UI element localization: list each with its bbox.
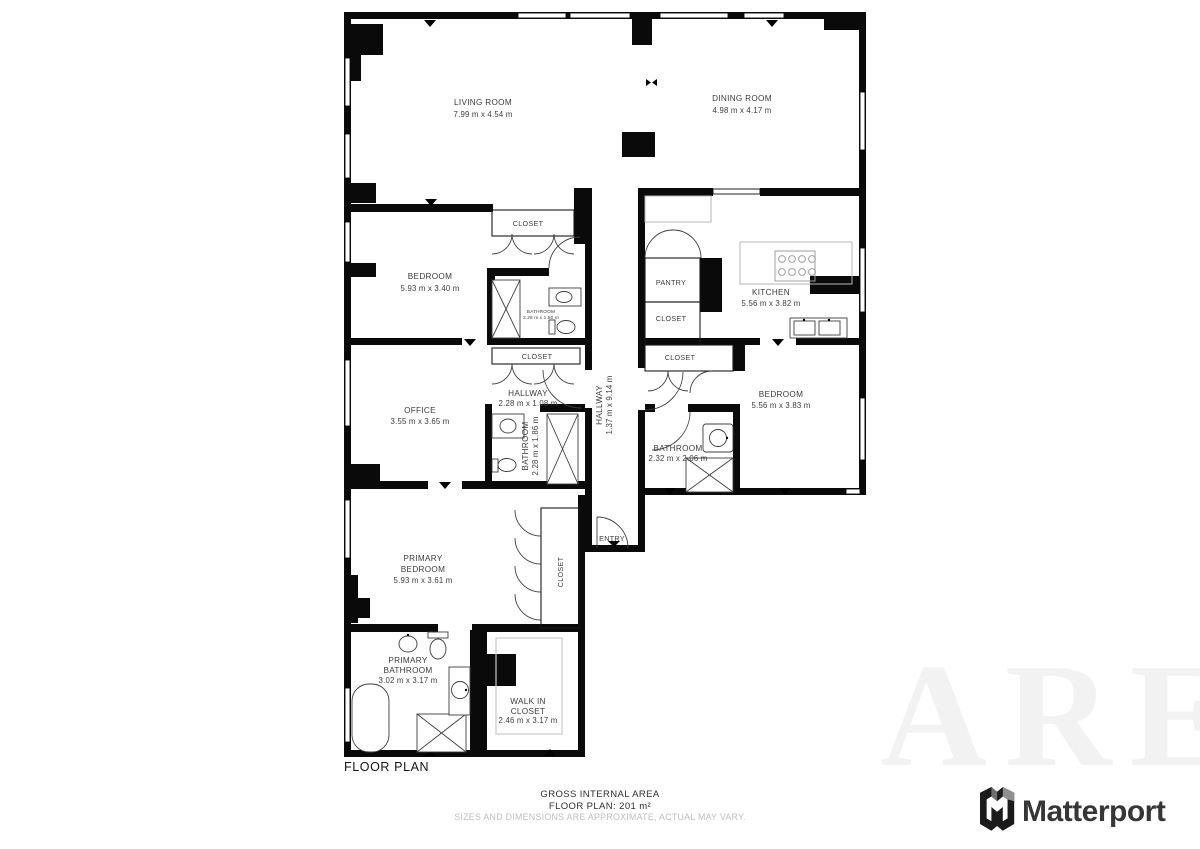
- bathroom-small-fixtures: [492, 280, 581, 338]
- room-dims-bathroom-hall: 2.28 m x 1.86 m: [531, 417, 540, 476]
- room-label-entry: ENTRY: [599, 534, 625, 543]
- room-dims-primary-bathroom: 3.02 m x 3.17 m: [379, 676, 438, 685]
- room-dims-bathroom-small: 2.28 m x 1.50 m: [523, 315, 559, 321]
- room-label-bathroom-small: BATHROOM: [527, 309, 555, 315]
- room-dims-bedroom-top: 5.93 m x 3.40 m: [401, 284, 460, 293]
- sink-icon: [500, 419, 516, 433]
- sink-icon: [819, 321, 840, 335]
- room-label-office: OFFICE: [404, 406, 436, 415]
- bathtub-icon: [352, 684, 389, 752]
- room-dims-walk-in-closet: 2.46 m x 3.17 m: [499, 716, 558, 725]
- room-dims-hallway-small: 2.28 m x 1.08 m: [499, 399, 558, 408]
- room-dims-bedroom-right: 5.56 m x 3.83 m: [752, 401, 811, 410]
- matterport-logo-text: Matterport: [1022, 795, 1166, 828]
- room-label-primary-bathroom-1: PRIMARY: [388, 656, 427, 665]
- room-label-pantry: PANTRY: [656, 278, 686, 287]
- room-label-closet-kitchen: CLOSET: [656, 314, 687, 323]
- toilet-icon: [492, 459, 498, 472]
- sink-icon: [794, 321, 815, 335]
- room-label-living: LIVING ROOM: [454, 98, 512, 107]
- room-dims-office: 3.55 m x 3.65 m: [391, 417, 450, 426]
- room-label-kitchen: KITCHEN: [752, 288, 790, 297]
- matterport-logo-icon: [980, 787, 1014, 831]
- room-label-bathroom-hall: BATHROOM: [521, 421, 530, 470]
- room-label-dining: DINING ROOM: [712, 94, 772, 103]
- watermark-text: ARE: [880, 634, 1200, 798]
- room-label-primary-bedroom-1: PRIMARY: [403, 554, 442, 563]
- toilet-icon: [428, 632, 448, 638]
- floor-plan-area-value: FLOOR PLAN: 201 m²: [549, 801, 651, 812]
- sink-icon: [710, 430, 727, 447]
- room-label-bedroom-right: BEDROOM: [759, 390, 803, 399]
- floor-plan-canvas: ARE: [0, 0, 1200, 849]
- disclaimer-text: SIZES AND DIMENSIONS ARE APPROXIMATE, AC…: [454, 812, 746, 822]
- sink-icon: [399, 636, 417, 652]
- room-label-hallway-small: HALLWAY: [508, 389, 548, 398]
- footer: GROSS INTERNAL AREA FLOOR PLAN: 201 m² S…: [454, 789, 746, 822]
- room-dims-dining: 4.98 m x 4.17 m: [713, 106, 772, 115]
- room-label-hallway-main: HALLWAY: [595, 385, 604, 425]
- matterport-logo: [980, 787, 1014, 831]
- toilet-icon: [549, 320, 555, 334]
- room-dims-living: 7.99 m x 4.54 m: [454, 110, 513, 119]
- room-label-walk-in-closet-2: CLOSET: [511, 707, 546, 716]
- room-label-closet-top: CLOSET: [513, 219, 544, 228]
- floor-plan-title: FLOOR PLAN: [344, 760, 429, 774]
- room-label-walk-in-closet-1: WALK IN: [510, 697, 545, 706]
- room-dims-kitchen: 5.56 m x 3.82 m: [742, 299, 801, 308]
- room-label-closet-hall: CLOSET: [522, 352, 553, 361]
- sink-icon: [556, 292, 572, 303]
- primary-bathroom-fixtures: [352, 632, 470, 752]
- room-label-primary-bedroom-2: BEDROOM: [401, 565, 445, 574]
- gross-internal-area-label: GROSS INTERNAL AREA: [540, 789, 659, 800]
- room-label-closet-primary: CLOSET: [556, 556, 565, 587]
- floor-plan-page: ARE: [0, 0, 1200, 849]
- room-dims-bathroom-right: 2.32 m x 2.06 m: [649, 454, 708, 463]
- room-dims-hallway-main: 1.37 m x 9.14 m: [605, 376, 614, 435]
- room-dims-primary-bedroom: 5.93 m x 3.61 m: [394, 576, 453, 585]
- room-label-bathroom-right: BATHROOM: [653, 444, 702, 453]
- room-label-bedroom-top: BEDROOM: [408, 272, 452, 281]
- room-label-primary-bathroom-2: BATHROOM: [383, 666, 432, 675]
- room-label-closet-bedroom-right: CLOSET: [665, 353, 696, 362]
